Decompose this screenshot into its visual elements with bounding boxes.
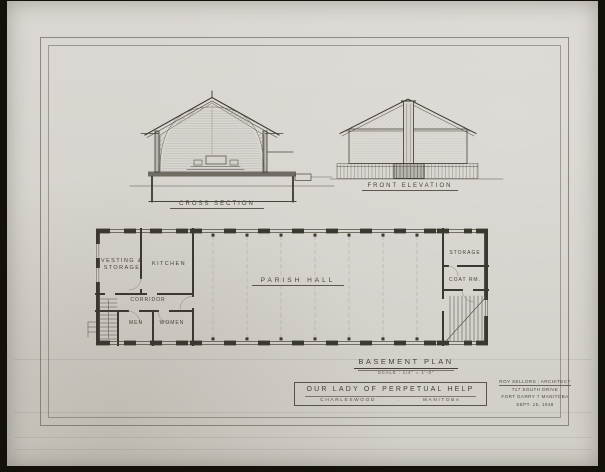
- architect-address2: FORT GARRY 7 MANITOBA: [497, 393, 573, 400]
- room-label-corridor: CORRIDOR: [122, 297, 174, 303]
- stair-right: [447, 296, 486, 341]
- room-label-coat-room: COAT RM.: [444, 277, 486, 283]
- bottom-wall-piers: [96, 341, 488, 346]
- room-label-parish-hall: PARISH HALL: [252, 277, 344, 286]
- architect-address1: 717 SOUTH DRIVE: [497, 386, 573, 393]
- photographed-drawing: { "colors": { "background": "#14100a", "…: [0, 0, 605, 472]
- top-wall-piers: [96, 229, 488, 234]
- location-separator: .: [398, 398, 401, 403]
- basement-plan-scale-note: SCALE : 1/4" = 1'-0": [354, 370, 458, 375]
- room-label-vesting-line2: STORAGE: [100, 265, 144, 271]
- room-label-men: MEN: [121, 320, 151, 326]
- room-label-storage: STORAGE: [444, 250, 486, 256]
- front-elevation-drawing: [330, 99, 503, 179]
- front-elevation-caption: FRONT ELEVATION: [362, 183, 458, 191]
- location-city: CHARLESWOOD: [320, 398, 376, 403]
- room-label-women: WOMEN: [153, 320, 191, 326]
- exterior-steps: [88, 322, 96, 337]
- title-block-rule: [305, 396, 476, 397]
- title-block: OUR LADY OF PERPETUAL HELP CHARLESWOOD .…: [294, 382, 487, 406]
- room-label-kitchen: KITCHEN: [146, 261, 192, 267]
- interior-walls: [96, 229, 488, 345]
- room-label-vesting-line1: VESTING &: [100, 258, 144, 264]
- location-province: MANITOBA: [423, 398, 461, 403]
- ceiling-beam-lines: [213, 236, 417, 339]
- cross-section-drawing: [130, 91, 334, 202]
- cross-section-caption: CROSS SECTION: [170, 201, 264, 209]
- project-title: OUR LADY OF PERPETUAL HELP: [295, 386, 486, 393]
- architect-name: ROY SELLORS : ARCHITECT: [499, 378, 570, 386]
- drawing-date: SEPT. 15, 1948: [497, 401, 573, 408]
- architect-block: ROY SELLORS : ARCHITECT 717 SOUTH DRIVE …: [497, 378, 573, 408]
- stair-left: [100, 299, 117, 339]
- project-location: CHARLESWOOD . MANITOBA: [295, 398, 486, 403]
- basement-plan-drawing: [88, 229, 489, 346]
- basement-plan-caption: BASEMENT PLAN: [354, 357, 458, 369]
